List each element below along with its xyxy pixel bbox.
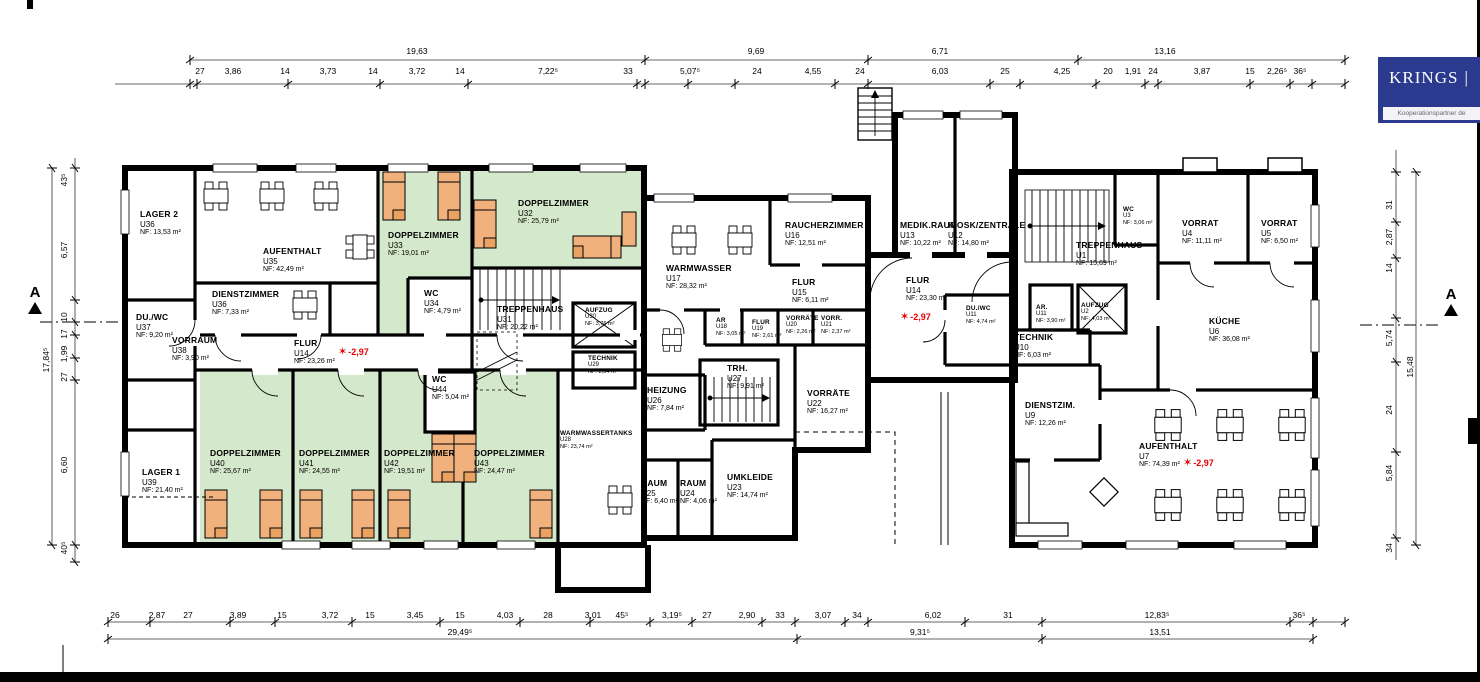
dimension-label: 12,83⁵ <box>1145 610 1170 620</box>
dimension-label: 25 <box>1000 66 1009 76</box>
room-runit: U21 <box>821 322 851 329</box>
room-runit: U30 <box>585 314 615 321</box>
room-rname: FLUR <box>906 276 947 286</box>
room-runit: U25 <box>641 489 678 498</box>
room-rname: DIENSTZIMMER <box>212 290 279 300</box>
dimension-label: 3,73 <box>320 66 337 76</box>
room-rnf: NF: 11,11 m² <box>1182 238 1222 246</box>
dim-total: 13,16 <box>1154 46 1175 56</box>
room-runit: U19 <box>752 326 782 333</box>
room-rname: VORRAT <box>1182 219 1222 229</box>
room-rname: FLUR <box>792 278 828 288</box>
room-rname: FLUR <box>294 339 335 349</box>
dimension-label: 15 <box>455 610 464 620</box>
room-rname: TECHNIK <box>588 355 618 362</box>
section-label: A <box>30 284 41 301</box>
room-rname: DIENSTZIM. <box>1025 401 1075 411</box>
room-runit: U12 <box>948 231 1025 240</box>
room-rnf: NF: 25,79 m² <box>518 218 589 226</box>
room-runit: U24 <box>680 489 717 498</box>
room-rnf: NF: 2,37 m² <box>821 329 851 335</box>
room-runit: U17 <box>666 274 732 283</box>
room-rnf: NF: 23,30 m² <box>906 295 947 303</box>
dimension-label: 3,89 <box>230 610 247 620</box>
room-runit: U16 <box>785 231 864 240</box>
dimension-label: 5,07⁵ <box>680 66 700 76</box>
room-runit: U20 <box>786 322 819 329</box>
dimension-lines <box>52 60 1416 639</box>
level-value: -2,97 <box>1193 458 1214 468</box>
room-rnf: NF: 6,11 m² <box>792 297 828 305</box>
floor-plan-canvas: LAGER 2U36NF: 13,53 m² AUFENTHALTU35NF: … <box>0 0 1480 682</box>
room-rnf: NF: 23,74 m² <box>560 444 632 450</box>
dimension-label: 33 <box>623 66 632 76</box>
room-rname: UMKLEIDE <box>727 473 773 483</box>
room-rname: TREPPENHAUS <box>1076 241 1142 251</box>
dimension-label: 3,07 <box>815 610 832 620</box>
room-rname: RAUCHERZIMMER <box>785 221 864 231</box>
dim-total: 9,69 <box>748 46 765 56</box>
dimension-ticks <box>47 55 1421 644</box>
room-rname: AR. <box>1036 304 1066 311</box>
dimension-label: 5,74 <box>1384 330 1394 347</box>
dimension-label: 43⁵ <box>59 174 69 187</box>
room-rnf: NF: 13,53 m² <box>140 229 181 237</box>
room-rname: AUFENTHALT <box>263 247 322 257</box>
dimension-label: 27 <box>183 610 192 620</box>
room-rnf: NF: 7,84 m² <box>647 405 687 413</box>
dimension-label: 14 <box>1384 263 1394 272</box>
room-runit: U22 <box>807 399 850 408</box>
room-rnf: NF: 4,06 m² <box>680 498 717 506</box>
room-rname: WC <box>424 289 461 299</box>
room-runit: U36 <box>140 220 181 229</box>
room-rnf: NF: 12,26 m² <box>1025 420 1075 428</box>
level-value: -2,97 <box>910 312 931 322</box>
dimension-label: 24 <box>752 66 761 76</box>
dimension-label: 14 <box>455 66 464 76</box>
room-runit: U36 <box>212 300 279 309</box>
room-rnf: NF: 19,51 m² <box>384 468 455 476</box>
room-rname: VORRÄTE <box>807 389 850 399</box>
room-rname: VORRAT <box>1261 219 1298 229</box>
level-marker-icon: ✶ <box>338 346 347 358</box>
dimension-label: 36⁵ <box>1294 66 1307 76</box>
dim-total: 17,84⁵ <box>41 348 51 373</box>
level-marker: ✶-2,97 <box>900 310 931 323</box>
room-rnf: NF: 12,51 m² <box>785 240 864 248</box>
section-marker-left: A <box>22 284 48 314</box>
dimension-label: 2,90 <box>739 610 756 620</box>
dimension-label: 36⁵ <box>1293 610 1306 620</box>
room-runit: U6 <box>1209 327 1250 336</box>
dim-total: 19,63 <box>406 46 427 56</box>
dimension-label: 6,02 <box>925 610 942 620</box>
room-rname: DU./WC <box>136 313 173 323</box>
room-rnf: NF: 2,26 m² <box>786 329 819 335</box>
dimension-label: 3,01 <box>585 610 602 620</box>
logo-subtitle: Kooperationspartner de <box>1383 107 1480 120</box>
room-runit: U39 <box>142 478 183 487</box>
dimension-label: 15 <box>277 610 286 620</box>
dimension-label: 5,84 <box>1384 465 1394 482</box>
room-rnf: NF: 19,01 m² <box>388 250 459 258</box>
room-rname: FLUR <box>752 319 782 326</box>
room-rname: AUFENTHALT <box>1139 442 1198 452</box>
dimension-label: 3,87 <box>1194 66 1211 76</box>
room-rnf: NF: 25,67 m² <box>210 468 281 476</box>
room-rname: AUFZUG <box>1081 302 1111 309</box>
dimension-label: 40⁵ <box>59 542 69 555</box>
dimension-label: 6,57 <box>59 242 69 259</box>
room-runit: U2 <box>1081 309 1111 316</box>
room-rnf: NF: 24,55 m² <box>299 468 370 476</box>
dimension-label: 45⁵ <box>616 610 629 620</box>
room-runit: U11 <box>1036 311 1066 318</box>
dimension-label: 10 <box>59 312 69 321</box>
room-rname: TREPPENHAUS <box>497 305 563 315</box>
room-rname: DOPPELZIMMER <box>474 449 545 459</box>
dimension-label: 3,72 <box>322 610 339 620</box>
dimension-label: 2,87 <box>149 610 166 620</box>
section-marker-right: A <box>1438 286 1464 316</box>
room-runit: U1 <box>1076 251 1142 260</box>
room-rnf: NF: 4,03 m² <box>1081 316 1111 322</box>
room-runit: U14 <box>294 349 335 358</box>
room-rname: KIOSK/ZENTRALE <box>948 221 1025 231</box>
room-rnf: NF: 3,76 m² <box>585 321 615 327</box>
room-rnf: NF: 7,33 m² <box>212 309 279 317</box>
room-runit: U10 <box>1014 343 1053 352</box>
dimension-label: 34 <box>852 610 861 620</box>
room-runit: U32 <box>518 209 589 218</box>
room-rnf: NF: 24,47 m² <box>474 468 545 476</box>
room-rname: AR <box>716 317 746 324</box>
room-rnf: NF: 6,40 m² <box>641 498 678 506</box>
room-rnf: NF: 3,06 m² <box>1123 220 1153 226</box>
room-rname: HEIZUNG <box>647 386 687 396</box>
dimension-label: 2,26⁵ <box>1267 66 1287 76</box>
room-runit: U41 <box>299 459 370 468</box>
room-runit: U29 <box>588 362 618 369</box>
room-rname: RAUM <box>641 479 678 489</box>
dimension-label: 3,72 <box>409 66 426 76</box>
dim-total: 6,71 <box>932 46 949 56</box>
dimension-label: 3,86 <box>225 66 242 76</box>
dimension-label: 24 <box>855 66 864 76</box>
room-runit: U35 <box>263 257 322 266</box>
dimension-label: 27 <box>702 610 711 620</box>
room-rnf: NF: 3,90 m² <box>1036 318 1066 324</box>
room-rname: AUFZUG <box>585 307 615 314</box>
room-rname: WARMWASSERTANKS <box>560 430 632 437</box>
room-runit: U34 <box>424 299 461 308</box>
dimension-label: 3,45 <box>407 610 424 620</box>
room-rnf: NF: 4,79 m² <box>424 308 461 316</box>
dimension-label: 2,87 <box>1384 229 1394 246</box>
room-rname: DOPPELZIMMER <box>210 449 281 459</box>
room-rname: KÜCHE <box>1209 317 1250 327</box>
sofa-icon <box>1016 462 1118 536</box>
dim-total: 13,51 <box>1149 627 1170 637</box>
logo: KRINGS| Kooperationspartner de <box>1378 57 1480 123</box>
dimension-label: 14 <box>368 66 377 76</box>
room-rnf: NF: 3,05 m² <box>716 331 746 337</box>
dimension-label: 6,03 <box>932 66 949 76</box>
dimension-label: 33 <box>775 610 784 620</box>
room-runit: U44 <box>432 385 469 394</box>
room-rnf: NF: 42,49 m² <box>263 266 322 274</box>
room-rname: LAGER 2 <box>140 210 181 220</box>
room-rname: WC <box>432 375 469 385</box>
room-rname: DU./WC <box>966 305 996 312</box>
room-runit: U23 <box>727 483 773 492</box>
dimension-label: 15 <box>1245 66 1254 76</box>
room-rname: VORR. <box>821 315 851 322</box>
room-runit: U18 <box>716 324 746 331</box>
dimension-label: 1,99 <box>59 346 69 363</box>
room-runit: U37 <box>136 323 173 332</box>
frame-bottom-bar <box>0 672 1480 682</box>
dimension-label: 4,03 <box>497 610 514 620</box>
room-runit: U5 <box>1261 229 1298 238</box>
level-marker: ✶-2,97 <box>1183 456 1214 469</box>
room-runit: U11 <box>966 312 996 319</box>
room-rname: RAUM <box>680 479 717 489</box>
room-rnf: NF: 36,08 m² <box>1209 336 1250 344</box>
room-rname: DOPPELZIMMER <box>388 231 459 241</box>
dimension-label: 4,25 <box>1054 66 1071 76</box>
dimension-label: 28 <box>543 610 552 620</box>
dimension-label: 20 <box>1103 66 1112 76</box>
dimension-label: 4,55 <box>805 66 822 76</box>
room-runit: U27 <box>727 374 764 383</box>
level-marker-icon: ✶ <box>1183 457 1192 469</box>
section-label: A <box>1446 286 1457 303</box>
room-rnf: NF: 2,61 m² <box>752 333 782 339</box>
dimension-label: 34 <box>1384 543 1394 552</box>
room-rnf: NF: 14,80 m² <box>948 240 1025 248</box>
dimension-label: 6,60 <box>59 457 69 474</box>
room-rnf: NF: 2,34 m² <box>588 369 618 375</box>
room-runit: U31 <box>497 315 563 324</box>
room-rnf: NF: 21,40 m² <box>142 487 183 495</box>
room-rname: VORRÄTE <box>786 315 819 322</box>
room-rname: TRH. <box>727 364 764 374</box>
room-runit: U4 <box>1182 229 1222 238</box>
dimension-label: 15 <box>365 610 374 620</box>
room-rname: LAGER 1 <box>142 468 183 478</box>
room-rnf: NF: 3,90 m² <box>172 355 217 363</box>
room-rname: WC <box>1123 206 1153 213</box>
room-runit: U14 <box>906 286 947 295</box>
room-runit: U15 <box>792 288 828 297</box>
room-runit: U43 <box>474 459 545 468</box>
dim-total: 29,49⁵ <box>448 627 473 637</box>
room-rnf: NF: 14,74 m² <box>727 492 773 500</box>
dimension-label: 7,22⁵ <box>538 66 558 76</box>
level-marker: ✶-2,97 <box>338 345 369 358</box>
room-rnf: NF: 6,50 m² <box>1261 238 1298 246</box>
room-rnf: NF: 28,32 m² <box>666 283 732 291</box>
room-rnf: NF: 4,74 m² <box>966 319 996 325</box>
room-rnf: NF: 15,69 m² <box>1076 260 1142 268</box>
dimension-label: 24 <box>1148 66 1157 76</box>
level-value: -2,97 <box>348 347 369 357</box>
dimension-label: 17 <box>59 329 69 338</box>
frame-mark <box>27 0 33 9</box>
room-rnf: NF: 6,03 m² <box>1014 352 1053 360</box>
dim-total: 9,31⁵ <box>910 627 930 637</box>
room-rname: TECHNIK <box>1014 333 1053 343</box>
room-rnf: NF: 23,26 m² <box>294 358 335 366</box>
room-runit: U33 <box>388 241 459 250</box>
room-rnf: NF: 20,22 m² <box>497 324 563 332</box>
dimension-label: 27 <box>195 66 204 76</box>
room-runit: U3 <box>1123 213 1153 220</box>
room-rname: WARMWASSER <box>666 264 732 274</box>
dimension-label: 31 <box>1384 200 1394 209</box>
dimension-label: 31 <box>1003 610 1012 620</box>
dimension-label: 26 <box>110 610 119 620</box>
room-rnf: NF: 9,91 m² <box>727 383 764 391</box>
room-rname: DOPPELZIMMER <box>299 449 370 459</box>
dimension-label: 14 <box>280 66 289 76</box>
room-rnf: NF: 5,04 m² <box>432 394 469 402</box>
room-runit: U40 <box>210 459 281 468</box>
room-rnf: NF: 9,20 m² <box>136 332 173 340</box>
room-runit: U26 <box>647 396 687 405</box>
room-runit: U28 <box>560 437 632 444</box>
logo-brand: KRINGS| <box>1378 57 1480 88</box>
room-rname: DOPPELZIMMER <box>518 199 589 209</box>
room-rname: DOPPELZIMMER <box>384 449 455 459</box>
room-runit: U38 <box>172 346 217 355</box>
level-marker-icon: ✶ <box>900 311 909 323</box>
room-runit: U42 <box>384 459 455 468</box>
dimension-label: 27 <box>59 372 69 381</box>
dimension-label: 24 <box>1384 405 1394 414</box>
room-rnf: NF: 16,27 m² <box>807 408 850 416</box>
room-runit: U9 <box>1025 411 1075 420</box>
section-arrow-icon <box>1444 304 1458 316</box>
room-rname: VORRAUM <box>172 336 217 346</box>
section-arrow-icon <box>28 302 42 314</box>
frame-mark <box>1468 418 1480 444</box>
dimension-label: 1,91 <box>1125 66 1142 76</box>
dim-total: 15,48 <box>1405 356 1415 377</box>
floor-plan-drawing <box>0 0 1480 682</box>
dimension-label: 3,19⁵ <box>662 610 682 620</box>
